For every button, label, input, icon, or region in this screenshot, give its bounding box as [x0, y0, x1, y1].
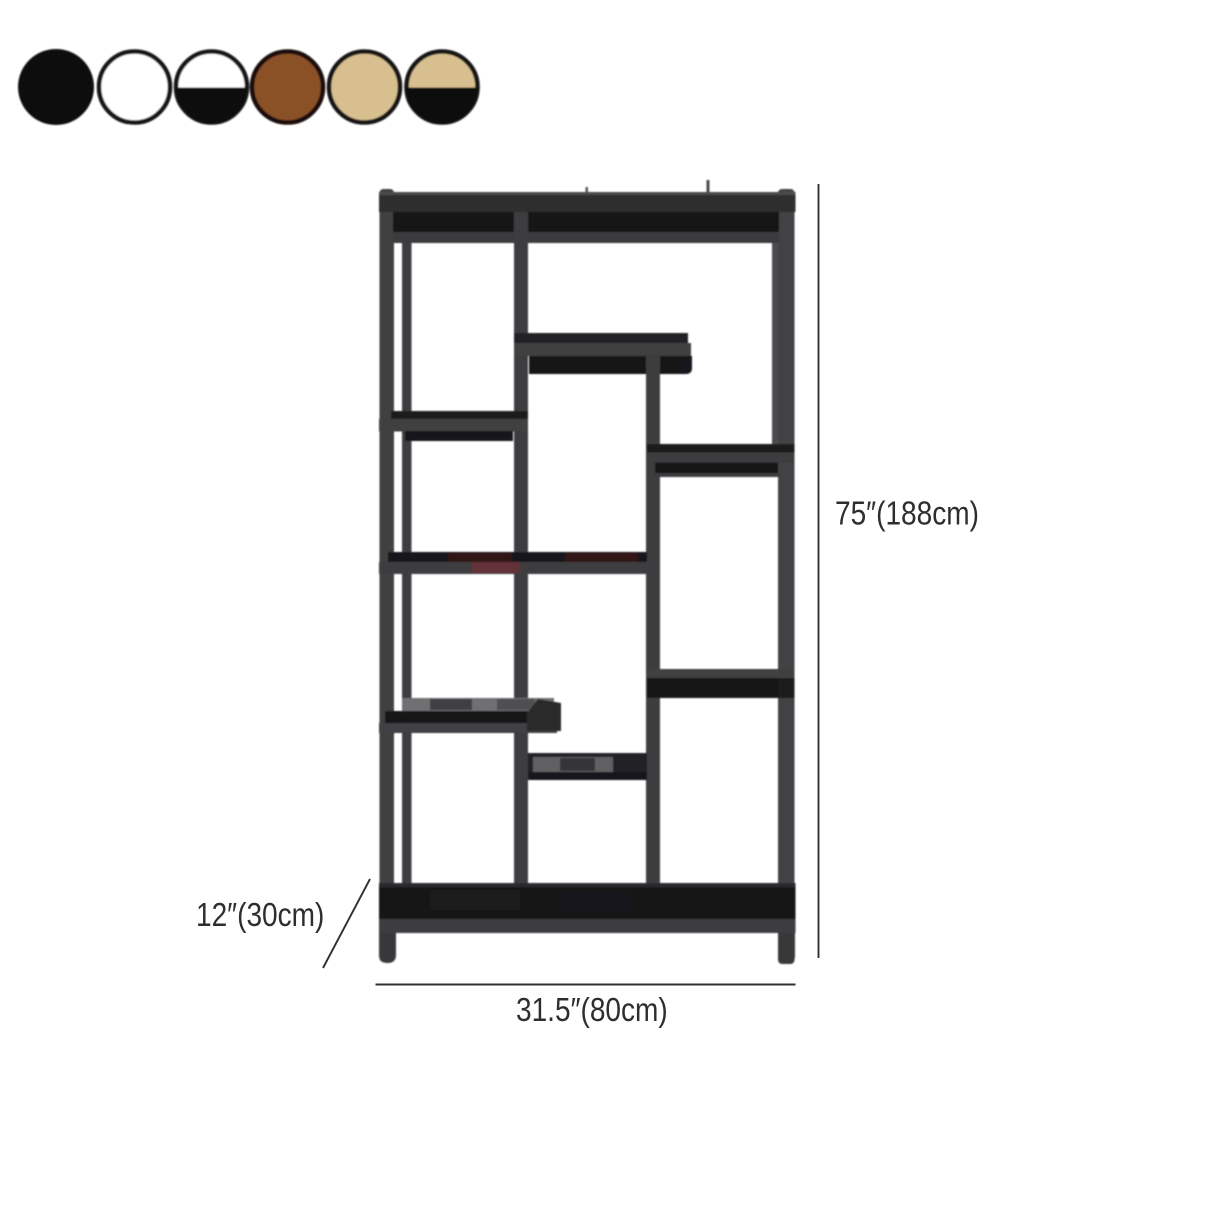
- svg-text:75″(188cm): 75″(188cm): [835, 495, 979, 532]
- svg-text:12″(30cm): 12″(30cm): [196, 897, 324, 934]
- svg-text:31.5″(80cm): 31.5″(80cm): [516, 992, 668, 1029]
